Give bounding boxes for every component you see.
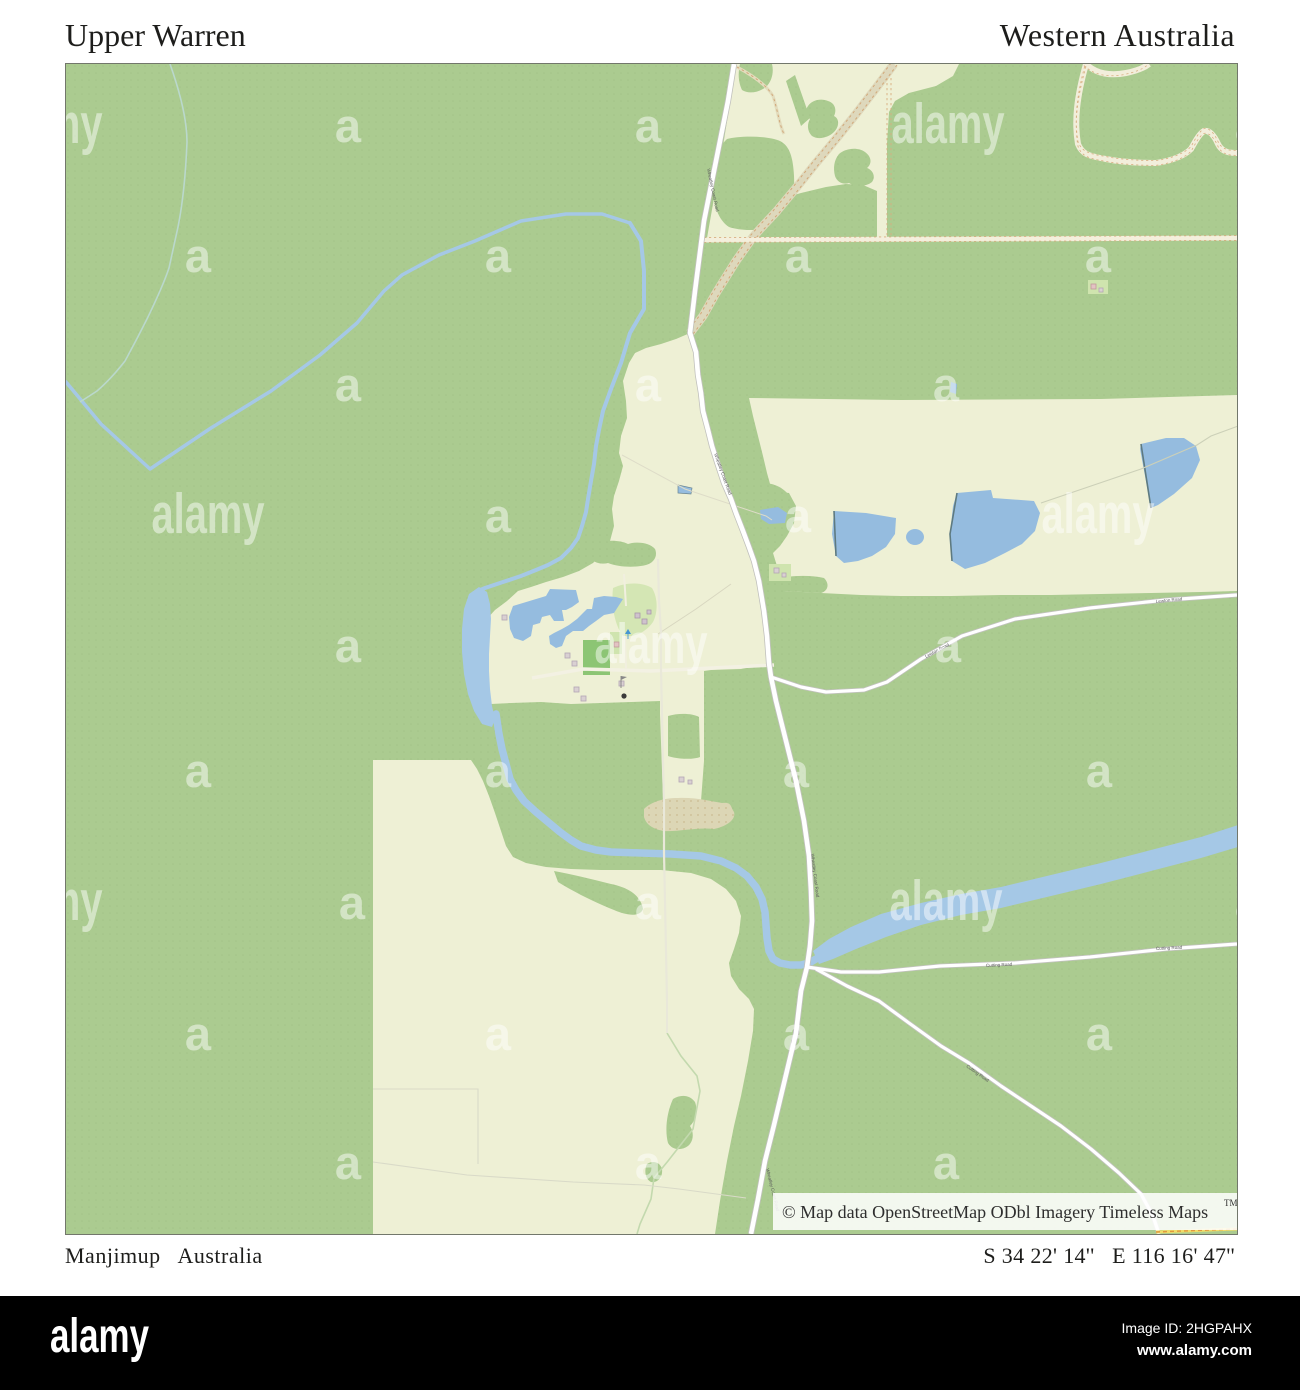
svg-text:a: a <box>485 1007 512 1060</box>
svg-text:a: a <box>783 744 810 797</box>
svg-text:www.alamy.com: www.alamy.com <box>1136 1342 1252 1359</box>
svg-text:a: a <box>1086 1007 1113 1060</box>
svg-text:alamy: alamy <box>152 482 265 546</box>
svg-text:a: a <box>485 489 512 542</box>
svg-text:a: a <box>335 99 362 152</box>
svg-text:Image ID: 2HGPAHX: Image ID: 2HGPAHX <box>1122 1320 1253 1336</box>
svg-text:alamy: alamy <box>66 92 103 156</box>
svg-text:a: a <box>635 358 662 411</box>
svg-text:a: a <box>485 744 512 797</box>
svg-text:a: a <box>635 1136 662 1189</box>
svg-text:alamy: alamy <box>890 869 1003 933</box>
svg-text:a: a <box>1086 744 1113 797</box>
svg-text:a: a <box>635 876 662 929</box>
svg-text:a: a <box>335 619 362 672</box>
svg-text:TM: TM <box>1224 1198 1237 1208</box>
svg-text:a: a <box>1085 229 1112 282</box>
svg-text:a: a <box>335 1136 362 1189</box>
svg-text:alamy: alamy <box>66 869 103 933</box>
svg-text:alamy: alamy <box>1042 482 1155 546</box>
svg-text:a: a <box>185 744 212 797</box>
svg-text:a: a <box>339 876 366 929</box>
svg-text:© Map data OpenStreetMap ODbl: © Map data OpenStreetMap ODbl Imagery Ti… <box>782 1202 1208 1222</box>
svg-text:alamy: alamy <box>595 612 708 676</box>
svg-text:a: a <box>1235 99 1237 152</box>
svg-text:alamy: alamy <box>892 92 1005 156</box>
svg-text:a: a <box>783 1007 810 1060</box>
svg-text:a: a <box>933 358 960 411</box>
svg-text:a: a <box>335 358 362 411</box>
svg-text:a: a <box>785 229 812 282</box>
svg-text:a: a <box>485 229 512 282</box>
svg-text:a: a <box>1235 876 1237 929</box>
svg-text:alamy: alamy <box>50 1310 149 1363</box>
svg-text:a: a <box>185 229 212 282</box>
svg-text:a: a <box>935 619 962 672</box>
svg-text:a: a <box>933 1136 960 1189</box>
svg-text:a: a <box>785 489 812 542</box>
svg-text:a: a <box>185 1007 212 1060</box>
svg-text:a: a <box>635 99 662 152</box>
